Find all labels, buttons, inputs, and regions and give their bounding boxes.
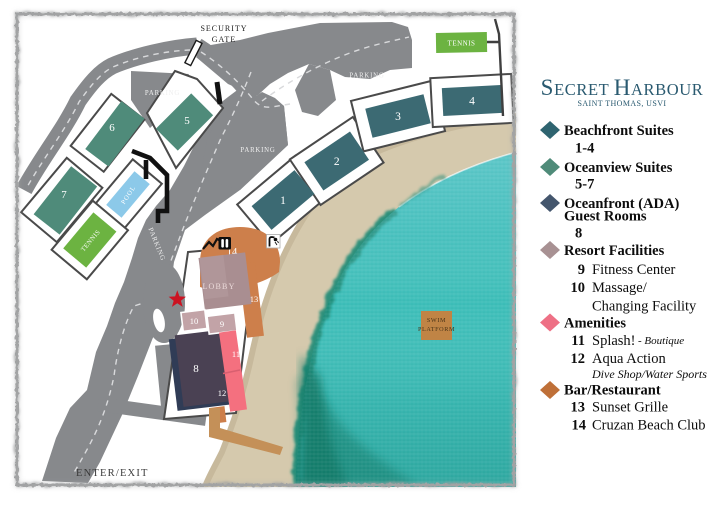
svg-text:Cruzan Beach Club: Cruzan Beach Club bbox=[592, 418, 706, 434]
svg-text:ENTER/EXIT: ENTER/EXIT bbox=[76, 468, 149, 479]
svg-text:1-4: 1-4 bbox=[575, 141, 594, 157]
svg-text:9: 9 bbox=[220, 319, 224, 329]
svg-text:Resort Facilities: Resort Facilities bbox=[564, 243, 665, 259]
svg-text:Oceanview Suites: Oceanview Suites bbox=[564, 160, 673, 176]
svg-text:8: 8 bbox=[575, 226, 582, 242]
svg-text:Guest Rooms: Guest Rooms bbox=[564, 209, 647, 225]
svg-text:SWIM: SWIM bbox=[427, 317, 446, 324]
svg-text:Dive Shop/Water Sports: Dive Shop/Water Sports bbox=[591, 367, 707, 381]
svg-text:12: 12 bbox=[218, 388, 227, 398]
svg-text:9: 9 bbox=[578, 262, 585, 278]
svg-text:LOBBY: LOBBY bbox=[202, 282, 235, 291]
svg-text:7: 7 bbox=[61, 189, 67, 201]
svg-text:2: 2 bbox=[334, 156, 340, 168]
svg-text:10: 10 bbox=[571, 280, 586, 296]
svg-text:Amenities: Amenities bbox=[564, 316, 626, 332]
svg-text:Sunset Grille: Sunset Grille bbox=[592, 400, 668, 416]
svg-text:3: 3 bbox=[395, 111, 401, 123]
svg-text:SECURITY: SECURITY bbox=[200, 24, 247, 33]
svg-text:Fitness Center: Fitness Center bbox=[592, 262, 676, 278]
svg-text:Splash!: Splash! bbox=[592, 333, 636, 349]
svg-text:- Boutique: - Boutique bbox=[638, 335, 684, 347]
svg-text:14: 14 bbox=[572, 418, 587, 434]
svg-text:11: 11 bbox=[232, 349, 240, 359]
svg-text:SAINT THOMAS, USVI: SAINT THOMAS, USVI bbox=[578, 99, 667, 108]
svg-text:Bar/Restaurant: Bar/Restaurant bbox=[564, 383, 661, 399]
svg-text:10: 10 bbox=[190, 316, 199, 326]
svg-text:PARKING: PARKING bbox=[145, 90, 180, 97]
svg-text:Beachfront Suites: Beachfront Suites bbox=[564, 123, 674, 139]
svg-text:PLATFORM: PLATFORM bbox=[418, 326, 455, 333]
svg-text:5-7: 5-7 bbox=[575, 177, 594, 193]
svg-text:Aqua Action: Aqua Action bbox=[592, 351, 666, 367]
svg-text:1: 1 bbox=[280, 195, 286, 207]
svg-text:Changing Facility: Changing Facility bbox=[592, 299, 697, 315]
svg-text:11: 11 bbox=[571, 333, 585, 349]
svg-text:TENNIS: TENNIS bbox=[448, 40, 476, 48]
svg-text:5: 5 bbox=[184, 115, 190, 127]
svg-text:6: 6 bbox=[109, 122, 115, 134]
svg-text:12: 12 bbox=[571, 351, 586, 367]
svg-text:13: 13 bbox=[571, 400, 586, 416]
svg-text:SECRET HARBOUR: SECRET HARBOUR bbox=[541, 75, 704, 100]
svg-text:8: 8 bbox=[193, 363, 199, 375]
svg-text:PARKING: PARKING bbox=[240, 147, 275, 154]
svg-text:PARKING: PARKING bbox=[349, 73, 384, 80]
svg-text:Massage/: Massage/ bbox=[592, 280, 648, 296]
svg-text:GATE: GATE bbox=[212, 35, 236, 44]
svg-text:4: 4 bbox=[469, 96, 475, 108]
